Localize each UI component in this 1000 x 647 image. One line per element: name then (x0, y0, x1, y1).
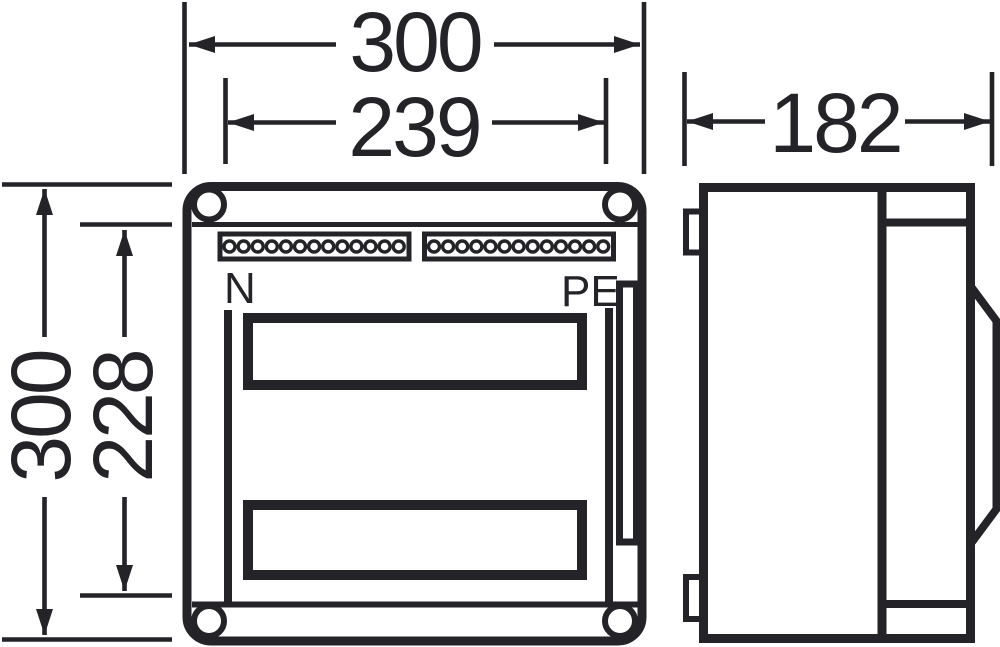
terminal-circle (584, 241, 595, 252)
terminal-circle (365, 241, 376, 252)
terminal-circle (252, 241, 263, 252)
right-rail-bar (605, 308, 613, 605)
dim-front-width-inner: 239 (226, 78, 607, 174)
side-view (686, 188, 997, 639)
terminal-circle (485, 241, 496, 252)
arrowhead-up-icon (116, 230, 133, 256)
arrowhead-down-icon (36, 609, 53, 635)
arrowhead-right-icon (578, 114, 604, 131)
neutral-terminal-label: N (224, 264, 256, 313)
terminal-circle (323, 241, 334, 252)
arrowhead-down-icon (116, 565, 133, 591)
front-view: N PE (187, 187, 642, 642)
arrowhead-left-icon (687, 113, 713, 130)
dim-front-height-inner: 228 (76, 225, 172, 596)
corner-screw-top-right (605, 190, 635, 220)
dim-label-front-height-overall: 300 (0, 351, 88, 482)
side-handle-profile (972, 288, 997, 542)
terminal-circle (238, 241, 249, 252)
terminal-circle (393, 241, 404, 252)
terminal-circle (379, 241, 390, 252)
terminal-circle (224, 241, 235, 252)
arrowhead-right-icon (964, 113, 990, 130)
terminal-circle (527, 241, 538, 252)
dim-side-depth: 182 (685, 72, 993, 170)
pe-bar-slot (620, 284, 637, 542)
dim-label-side-depth: 182 (769, 76, 900, 170)
dim-label-front-height-inner: 228 (76, 351, 170, 482)
enclosure-dimension-drawing: N PE 300 239 (0, 0, 1000, 647)
side-enclosure-outline (704, 188, 971, 639)
corner-screw-bottom-right (605, 606, 635, 636)
left-rail-bar (224, 310, 232, 605)
terminal-circle (555, 241, 566, 252)
terminal-circle (499, 241, 510, 252)
terminal-circle (429, 241, 440, 252)
arrowhead-up-icon (36, 189, 53, 215)
terminal-circle (443, 241, 454, 252)
terminal-circle (598, 241, 609, 252)
terminal-circle (309, 241, 320, 252)
corner-screw-top-left (194, 190, 224, 220)
drawing-canvas: N PE 300 239 (0, 0, 1000, 647)
terminal-circle (541, 241, 552, 252)
dim-label-front-width-inner: 239 (348, 80, 479, 174)
dim-label-front-width-overall: 300 (349, 0, 480, 89)
terminal-circle (337, 241, 348, 252)
terminal-circle (513, 241, 524, 252)
terminal-circle (457, 241, 468, 252)
arrowhead-left-icon (228, 114, 254, 131)
terminal-circle (471, 241, 482, 252)
terminal-circle (280, 241, 291, 252)
arrowhead-left-icon (189, 36, 215, 53)
terminal-circle (570, 241, 581, 252)
arrowhead-right-icon (614, 36, 640, 53)
terminal-circle (295, 241, 306, 252)
corner-screw-bottom-left (194, 606, 224, 636)
terminal-circle (351, 241, 362, 252)
terminal-circle (266, 241, 277, 252)
